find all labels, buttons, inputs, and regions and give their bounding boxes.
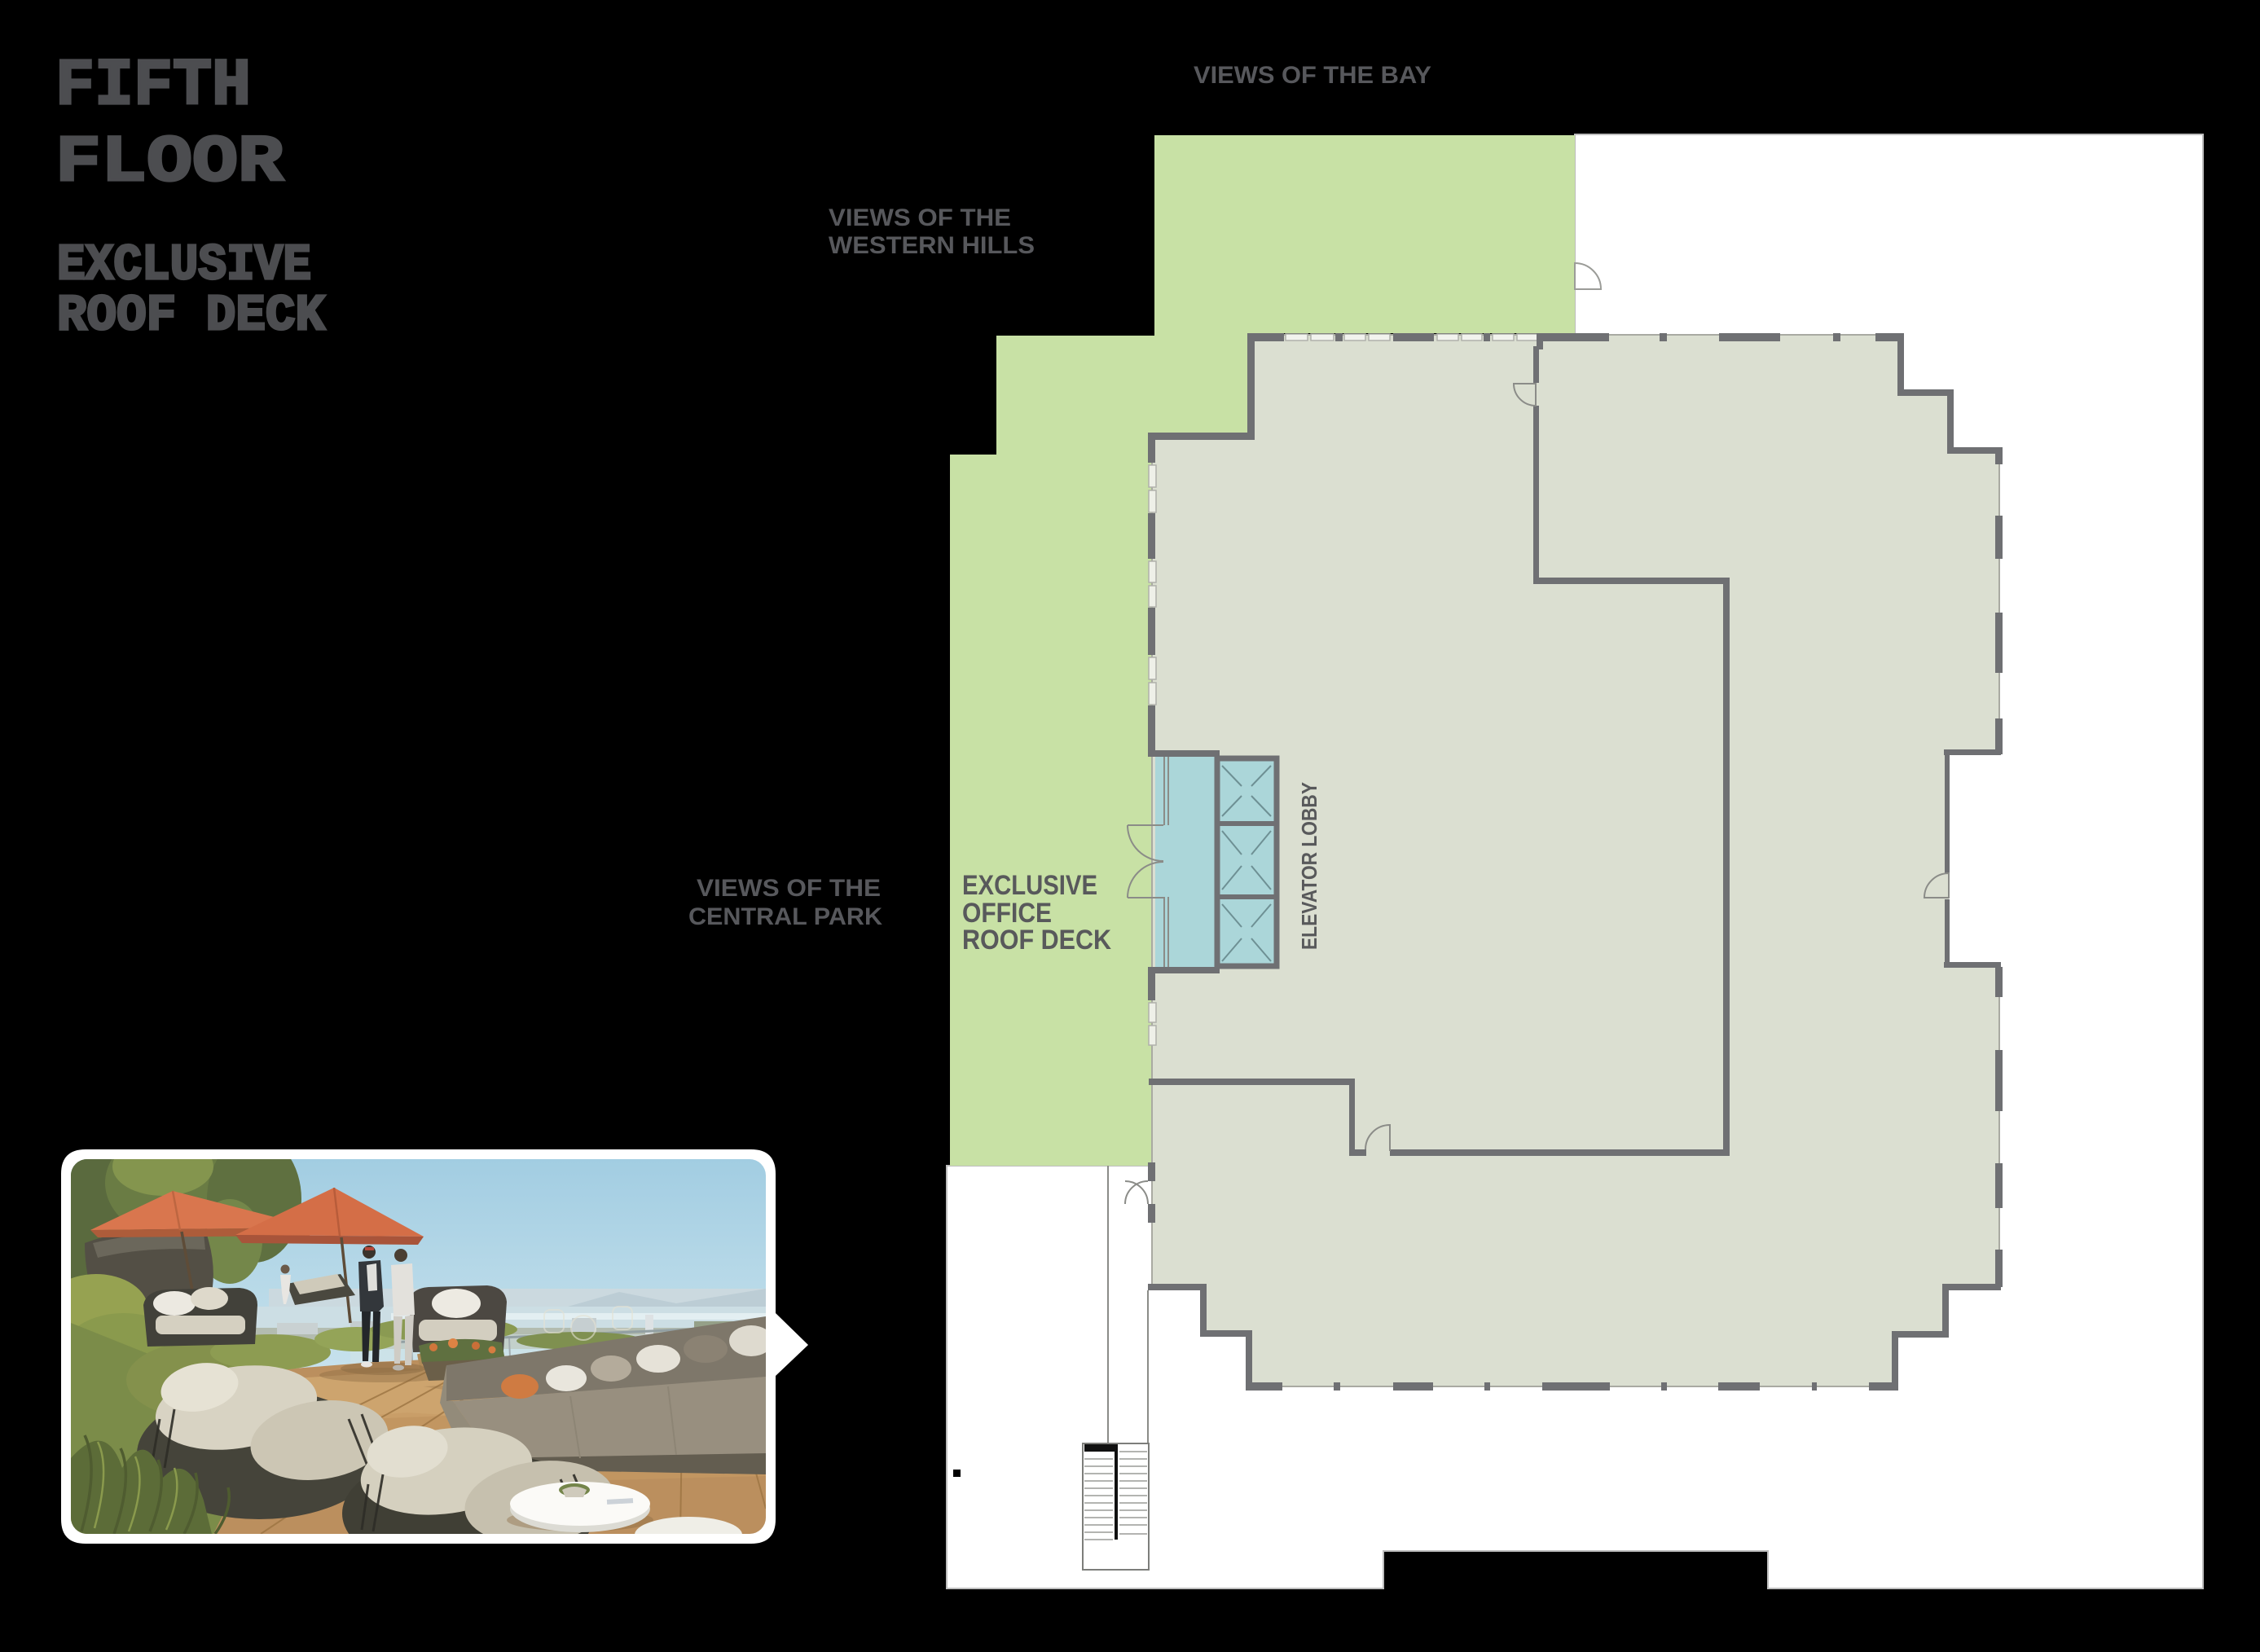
svg-text:FIFTH: FIFTH [55,50,251,124]
svg-text:VIEWS OF THE: VIEWS OF THE [829,204,1011,231]
svg-text:VIEWS OF THE: VIEWS OF THE [697,875,881,902]
svg-text:WESTERN HILLS: WESTERN HILLS [829,232,1035,259]
svg-text:ELEVATOR LOBBY: ELEVATOR LOBBY [1297,782,1321,950]
svg-text:EXCLUSIVE: EXCLUSIVE [962,870,1097,901]
svg-text:CENTRAL PARK: CENTRAL PARK [688,903,882,930]
svg-text:FLOOR: FLOOR [55,126,284,200]
svg-text:VIEWS OF THE BAY: VIEWS OF THE BAY [1194,62,1431,89]
svg-text:ROOF DECK: ROOF DECK [57,287,326,345]
svg-text:ROOF DECK: ROOF DECK [962,925,1111,956]
svg-text:EXCLUSIVE: EXCLUSIVE [57,236,311,294]
